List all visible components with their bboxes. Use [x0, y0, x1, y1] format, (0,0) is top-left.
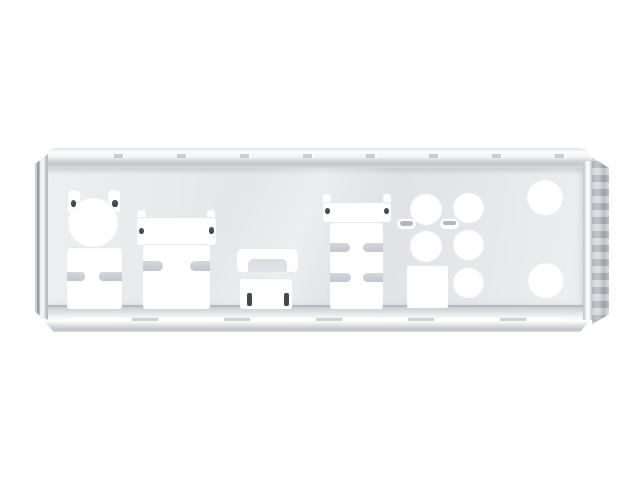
usb-port-cutout [143, 244, 210, 309]
audio-jack-hole-4 [453, 229, 484, 260]
audio-jack-hole-2 [453, 192, 484, 223]
lan-port-cutout [137, 217, 216, 245]
stamped-dimple [325, 208, 330, 215]
hdmi-clip-bridge [248, 259, 287, 272]
antenna-hole-bottom [528, 262, 564, 298]
audio-jack-hole-5 [453, 267, 484, 298]
emi-spring-bar [400, 221, 414, 226]
spdif-square-cutout [407, 265, 448, 308]
emi-finger-bar [190, 261, 210, 271]
emi-finger-bar [330, 243, 350, 252]
bent-tab-mark [247, 293, 252, 306]
emi-spring-bar [443, 221, 456, 226]
product-photo [0, 0, 640, 480]
emi-finger-bar [143, 261, 163, 271]
plate-face-reflection [47, 167, 585, 306]
emi-finger-bar [330, 273, 351, 282]
emi-finger-bar [99, 272, 122, 281]
plate-right-fold [583, 161, 593, 320]
stamped-dimple [384, 208, 389, 215]
lan-port-cutout [323, 202, 391, 223]
bent-tab-mark [284, 293, 289, 306]
audio-jack-hole-3 [410, 230, 442, 262]
stamped-dimple [71, 200, 77, 207]
stamped-dimple [139, 228, 144, 235]
emi-finger-bar [67, 272, 85, 281]
emi-finger-bar [363, 273, 383, 282]
plate-left-edge [35, 152, 48, 324]
dual-usb-cutout [330, 222, 383, 310]
plate-top-flange [38, 148, 596, 168]
plate-right-edge [592, 154, 609, 328]
emi-finger-bar [363, 243, 383, 252]
stamped-dimple [209, 227, 214, 234]
antenna-hole-top [527, 179, 563, 215]
stamped-dimple [112, 200, 118, 207]
plate-bottom-flange [36, 305, 596, 332]
